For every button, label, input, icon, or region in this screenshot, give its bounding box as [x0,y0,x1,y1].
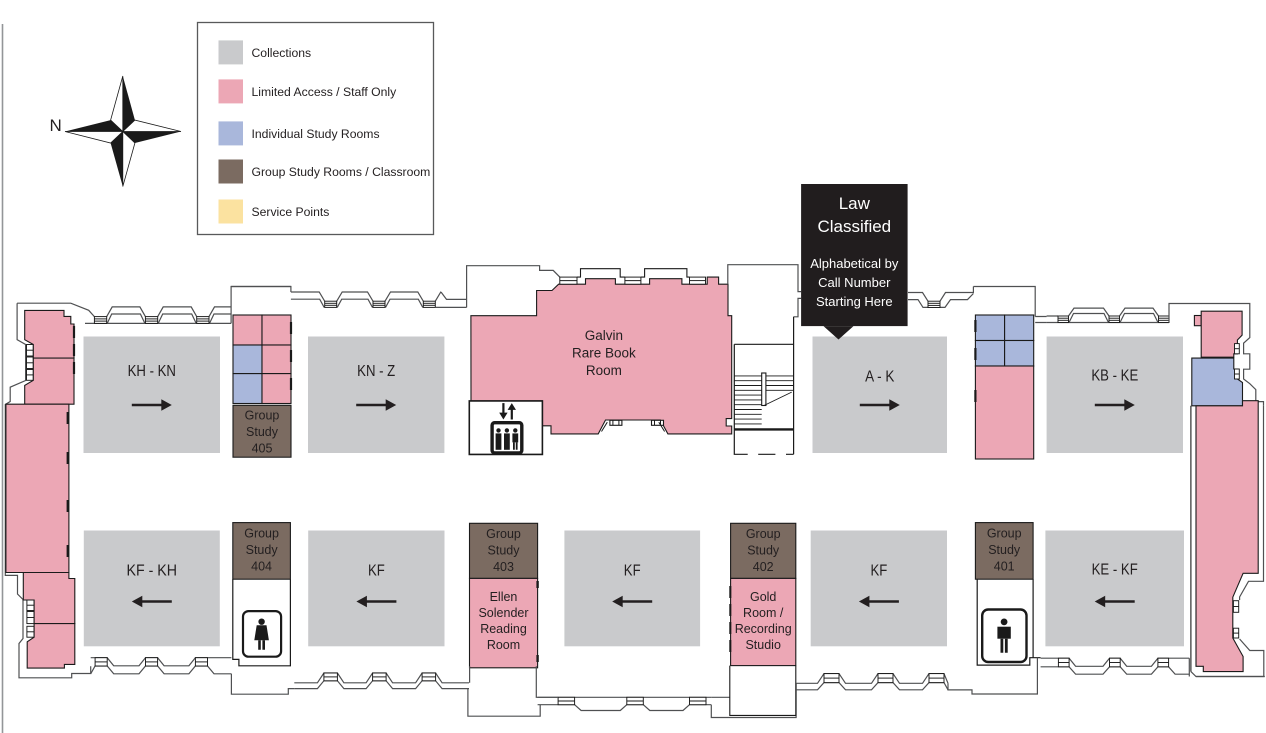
svg-text:Group: Group [245,409,280,423]
svg-text:KF - KH: KF - KH [127,563,178,580]
svg-text:Alphabetical by: Alphabetical by [810,256,899,271]
svg-text:Group: Group [486,527,521,541]
svg-text:403: 403 [493,560,514,574]
svg-text:Group: Group [987,527,1022,541]
svg-text:404: 404 [251,560,272,574]
svg-text:Collections: Collections [252,46,312,60]
svg-text:Service Points: Service Points [252,205,330,219]
svg-text:N: N [50,116,62,135]
svg-text:KN - Z: KN - Z [357,363,395,380]
svg-text:KB - KE: KB - KE [1091,368,1138,385]
svg-text:Room: Room [487,638,520,652]
svg-text:KF: KF [624,563,641,580]
svg-text:Classified: Classified [817,217,891,236]
svg-text:Study: Study [988,543,1021,557]
svg-text:Study: Study [488,544,521,558]
svg-text:KE - KF: KE - KF [1092,562,1138,579]
svg-text:Ellen: Ellen [490,590,518,604]
svg-text:Rare Book: Rare Book [572,346,636,361]
svg-text:KH - KN: KH - KN [128,363,176,380]
svg-text:A - K: A - K [865,369,895,386]
svg-text:401: 401 [994,560,1015,574]
svg-text:Limited Access / Staff Only: Limited Access / Staff Only [252,85,398,99]
svg-text:Group: Group [244,527,279,541]
svg-text:Recording: Recording [735,622,792,636]
svg-text:Solender: Solender [478,606,528,620]
svg-text:Room /: Room / [743,606,784,620]
svg-text:Gold: Gold [750,590,776,604]
svg-text:Galvin: Galvin [585,328,623,343]
svg-text:Reading: Reading [480,622,527,636]
svg-text:402: 402 [753,560,774,574]
svg-text:Law: Law [839,194,871,213]
svg-text:Call Number: Call Number [818,275,891,290]
svg-text:KF: KF [871,563,888,580]
svg-text:Group: Group [746,527,781,541]
svg-text:405: 405 [252,442,273,456]
svg-text:KF: KF [368,563,385,580]
svg-text:Starting Here: Starting Here [816,294,893,309]
svg-text:Studio: Studio [745,638,780,652]
svg-text:Study: Study [246,425,279,439]
svg-text:Study: Study [747,544,780,558]
svg-text:Group Study Rooms / Classroom: Group Study Rooms / Classroom [252,165,431,179]
svg-text:Individual Study Rooms: Individual Study Rooms [252,127,380,141]
svg-text:Room: Room [586,363,622,378]
svg-text:Study: Study [246,543,279,557]
